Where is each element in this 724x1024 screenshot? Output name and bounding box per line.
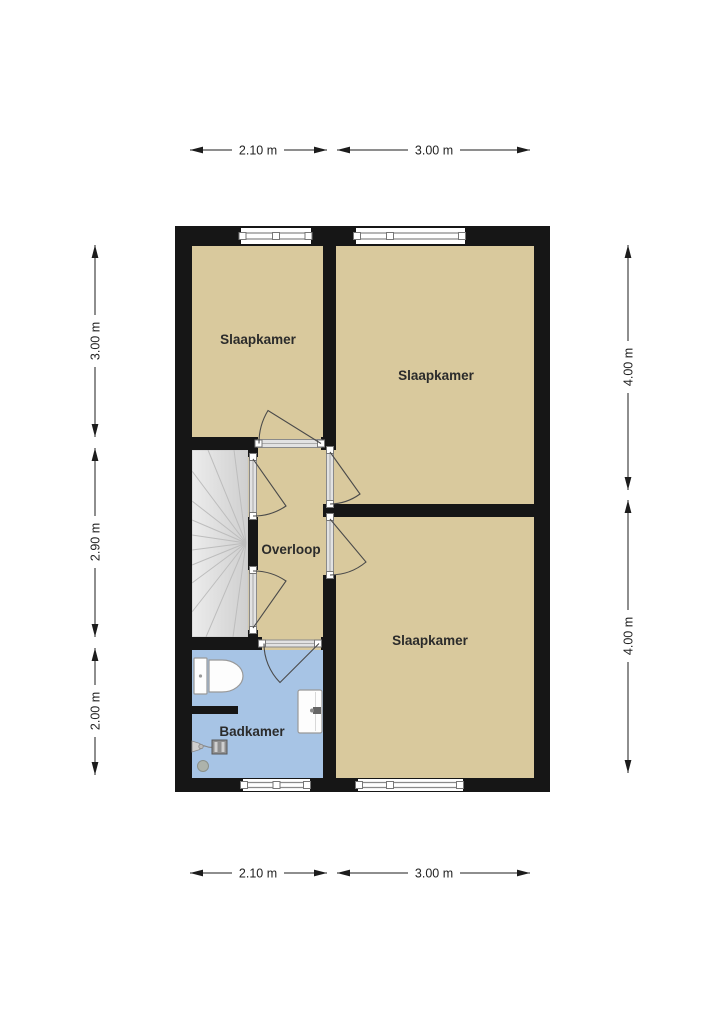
wall-bedroom-separator bbox=[336, 504, 534, 517]
wall-interior-vertical bbox=[323, 246, 336, 450]
dim-left-1: 3.00 m bbox=[89, 322, 103, 360]
dim-top-2: 3.00 m bbox=[415, 144, 453, 158]
washbasin-icon bbox=[298, 690, 322, 733]
wall-shower-partition bbox=[192, 706, 238, 714]
window-bottom-bedroom bbox=[356, 779, 464, 791]
staircase bbox=[192, 450, 248, 637]
label-slaapkamer-top-left: Slaapkamer bbox=[220, 332, 297, 347]
dim-left-3: 2.00 m bbox=[89, 692, 103, 730]
floorplan-page: Slaapkamer Slaapkamer Slaapkamer Overloo… bbox=[0, 0, 724, 1024]
dimensions-bottom: 2.10 m 3.00 m bbox=[190, 864, 530, 882]
wall-exterior-left bbox=[175, 226, 192, 792]
dim-right-1: 4.00 m bbox=[622, 348, 636, 386]
label-slaapkamer-top-right: Slaapkamer bbox=[398, 368, 475, 383]
dimensions-right: 4.00 m 4.00 m bbox=[619, 245, 637, 773]
wall-bathroom-top bbox=[321, 637, 336, 650]
dim-right-2: 4.00 m bbox=[622, 617, 636, 655]
floor-plan: Slaapkamer Slaapkamer Slaapkamer Overloo… bbox=[0, 0, 724, 1024]
dim-top-1: 2.10 m bbox=[239, 144, 277, 158]
window-top-left bbox=[239, 228, 312, 244]
window-bottom-bathroom bbox=[241, 779, 311, 791]
label-overloop: Overloop bbox=[261, 542, 320, 557]
dim-left-2: 2.90 m bbox=[89, 523, 103, 561]
shower-drain-icon bbox=[198, 761, 209, 772]
wall-stairwell bbox=[248, 517, 258, 570]
label-badkamer: Badkamer bbox=[219, 724, 285, 739]
wall-interior-horizontal bbox=[192, 437, 258, 450]
dim-bottom-2: 3.00 m bbox=[415, 867, 453, 881]
dimensions-left: 3.00 m 2.90 m 2.00 m bbox=[86, 245, 104, 775]
window-top-right bbox=[354, 228, 466, 244]
wall-exterior-right bbox=[534, 226, 550, 792]
label-slaapkamer-bottom-right: Slaapkamer bbox=[392, 633, 469, 648]
shower-mixer-icon bbox=[212, 740, 227, 754]
toilet-icon bbox=[194, 658, 243, 694]
wall-interior-vertical bbox=[323, 575, 336, 778]
dim-bottom-1: 2.10 m bbox=[239, 867, 277, 881]
wall-bathroom-top bbox=[192, 637, 262, 650]
dimensions-top: 2.10 m 3.00 m bbox=[190, 141, 530, 159]
